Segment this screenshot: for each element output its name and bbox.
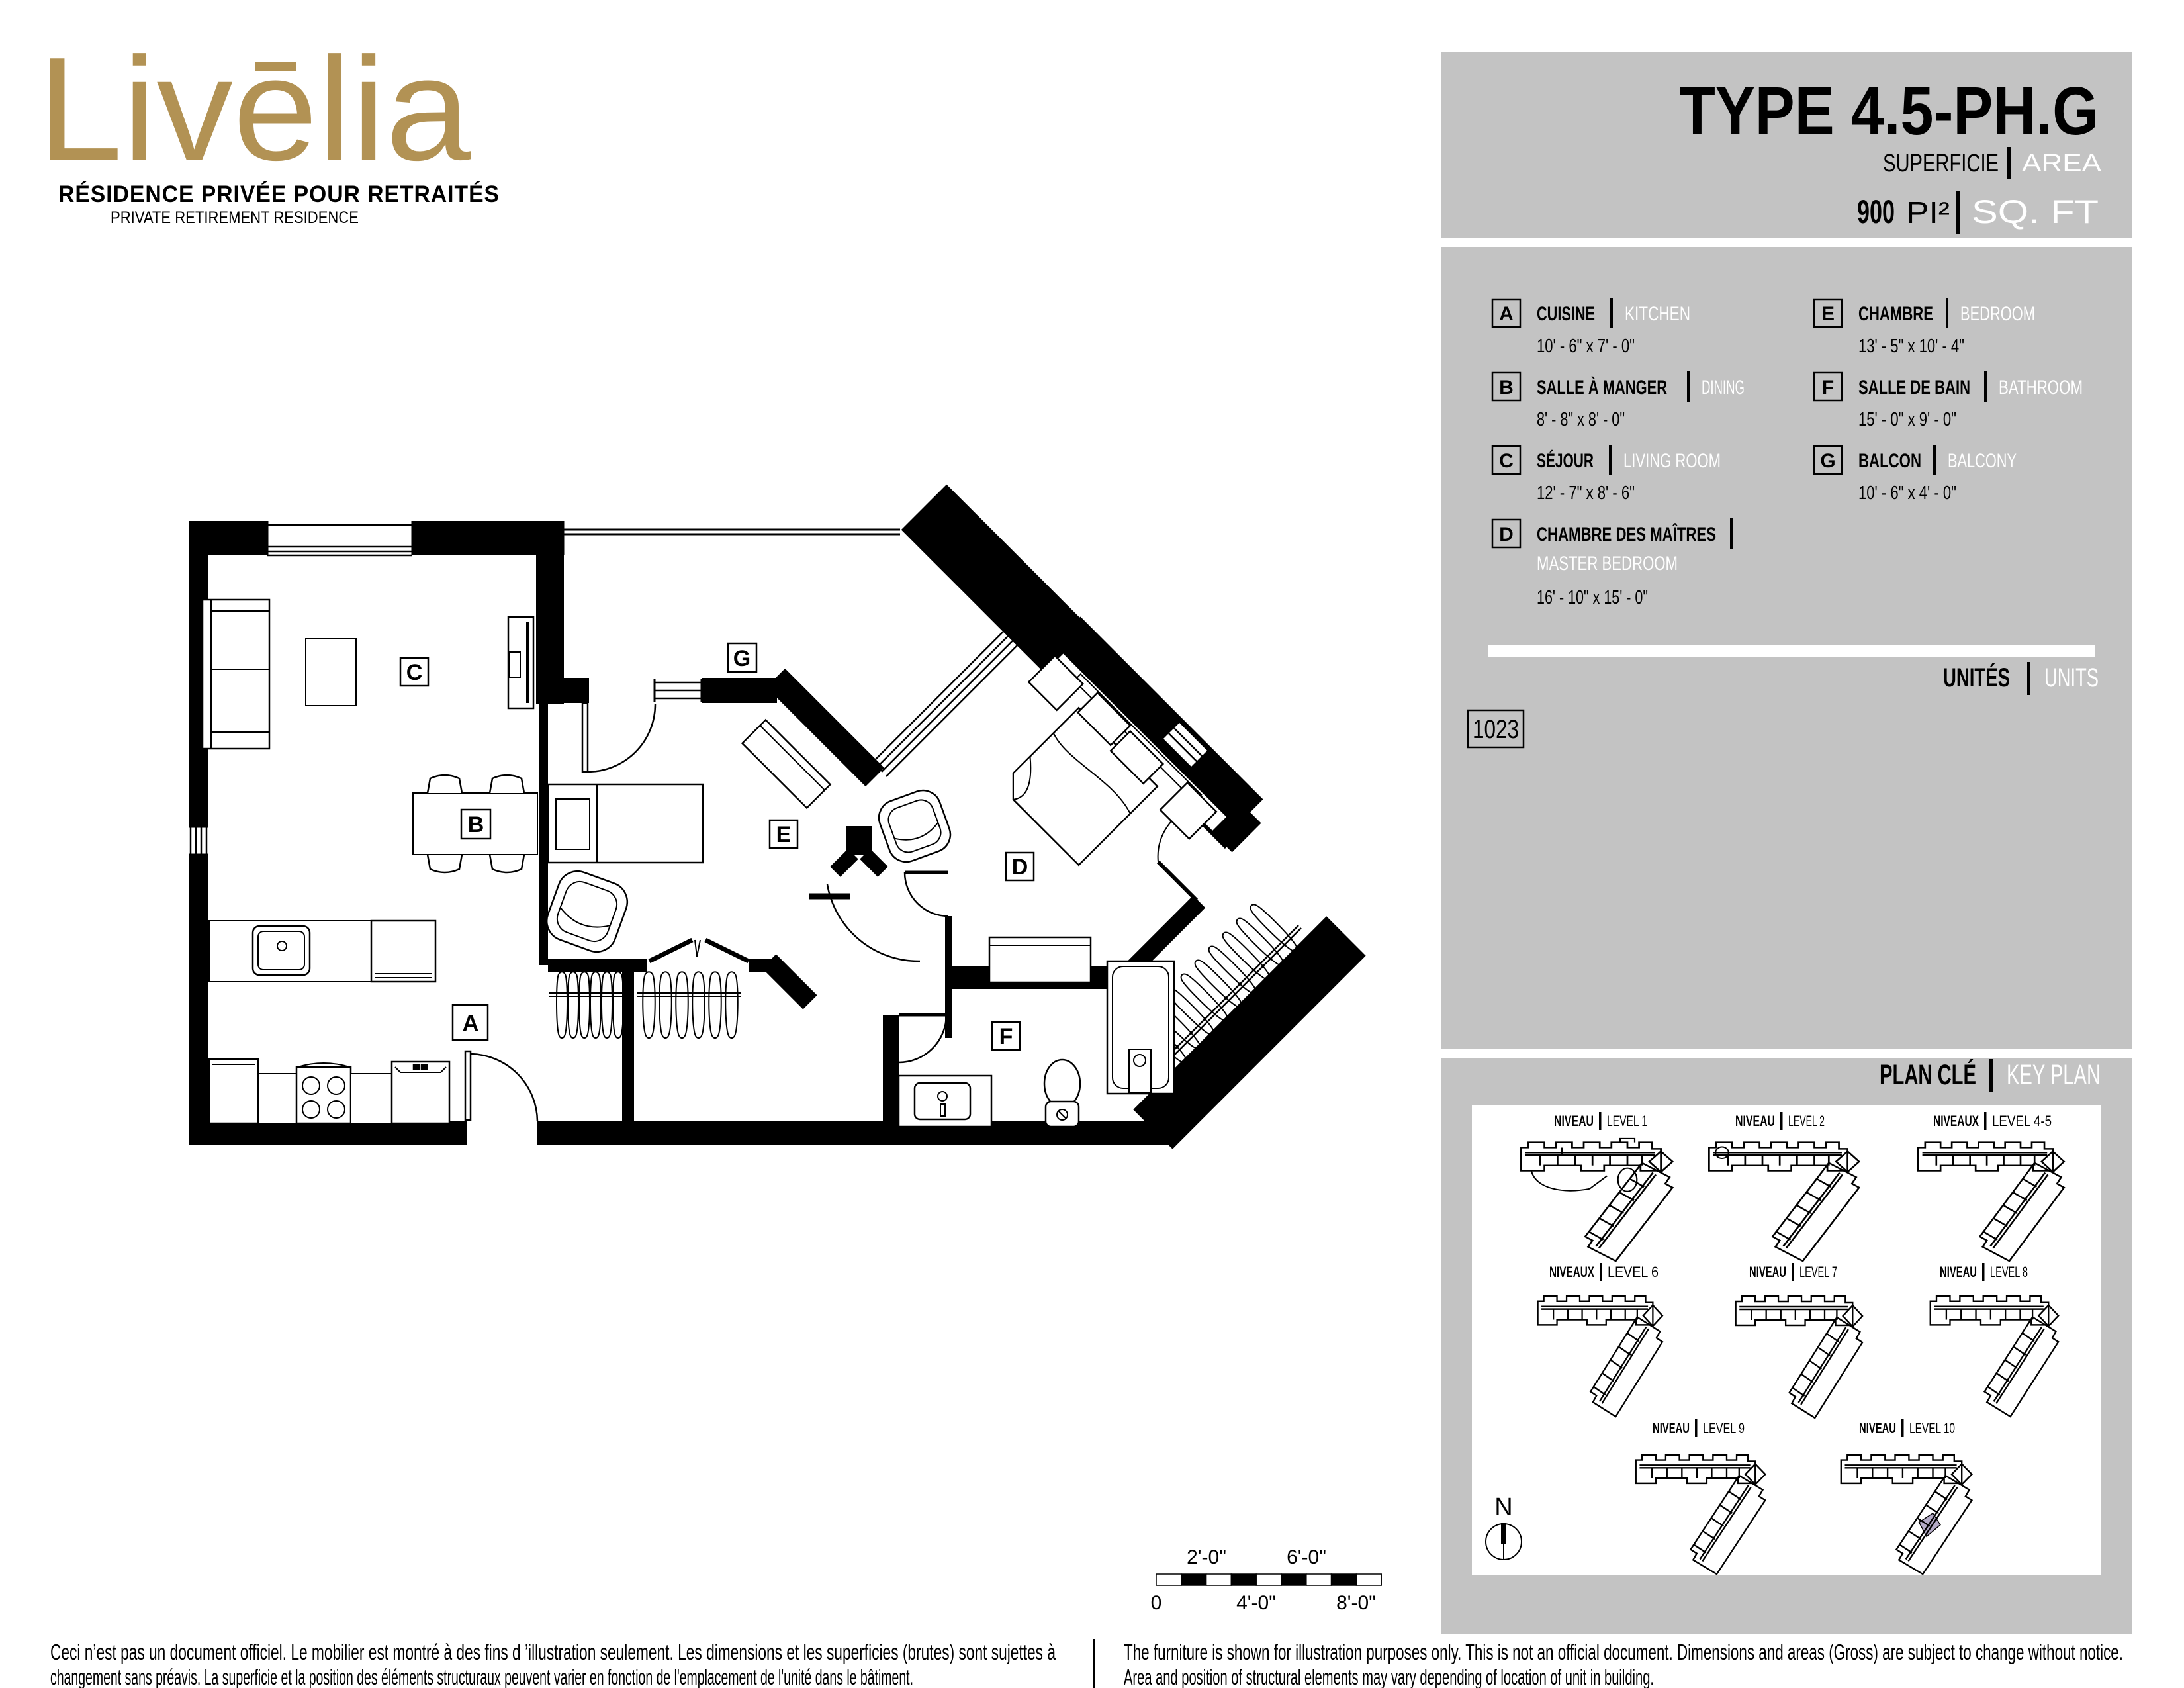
svg-text:SALLE À MANGER: SALLE À MANGER (1537, 376, 1667, 399)
svg-text:changement sans préavis. La su: changement sans préavis. La superficie e… (50, 1665, 913, 1688)
svg-text:KITCHEN: KITCHEN (1625, 303, 1690, 325)
svg-text:RÉSIDENCE PRIVÉE POUR RETRAITÉ: RÉSIDENCE PRIVÉE POUR RETRAITÉS (58, 181, 500, 207)
svg-text:SQ. FT: SQ. FT (1972, 193, 2099, 230)
svg-text:KEY PLAN: KEY PLAN (2007, 1059, 2101, 1091)
svg-text:UNITÉS: UNITÉS (1943, 663, 2010, 692)
svg-text:Livēlia: Livēlia (38, 27, 471, 191)
svg-text:LEVEL 4-5: LEVEL 4-5 (1992, 1113, 2052, 1129)
svg-text:2'-0": 2'-0" (1187, 1546, 1226, 1568)
svg-text:C: C (1499, 450, 1514, 472)
svg-text:LEVEL 6: LEVEL 6 (1608, 1264, 1659, 1280)
svg-text:D: D (1499, 524, 1514, 545)
svg-text:NIVEAU: NIVEAU (1653, 1420, 1690, 1436)
svg-text:BATHROOM: BATHROOM (1999, 377, 2083, 399)
svg-text:8' - 8" x 8' - 0": 8' - 8" x 8' - 0" (1537, 409, 1625, 430)
svg-text:10' - 6" x 4' - 0": 10' - 6" x 4' - 0" (1858, 483, 1956, 504)
svg-text:The furniture is shown for ill: The furniture is shown for illustration … (1124, 1640, 2123, 1664)
svg-text:Area and position of structura: Area and position of structural elements… (1124, 1665, 1654, 1688)
svg-text:PLAN CLÉ: PLAN CLÉ (1880, 1059, 1976, 1091)
svg-text:E: E (1821, 303, 1835, 325)
svg-text:SALLE DE BAIN: SALLE DE BAIN (1858, 377, 1970, 399)
svg-text:0: 0 (1151, 1592, 1162, 1614)
svg-text:E: E (776, 822, 792, 847)
svg-text:900: 900 (1857, 193, 1895, 230)
svg-text:CHAMBRE DES MAÎTRES: CHAMBRE DES MAÎTRES (1537, 523, 1716, 545)
svg-text:NIVEAU: NIVEAU (1554, 1113, 1594, 1129)
svg-text:BEDROOM: BEDROOM (1960, 303, 2035, 325)
svg-text:NIVEAU: NIVEAU (1859, 1420, 1896, 1436)
svg-text:CHAMBRE: CHAMBRE (1858, 303, 1933, 325)
svg-text:NIVEAU: NIVEAU (1749, 1264, 1786, 1280)
svg-text:12' - 7" x 8' - 6": 12' - 7" x 8' - 6" (1537, 483, 1635, 504)
svg-text:Ceci n’est pas un document off: Ceci n’est pas un document officiel. Le … (50, 1640, 1056, 1664)
svg-text:SUPERFICIE: SUPERFICIE (1883, 150, 1999, 177)
svg-text:MASTER BEDROOM: MASTER BEDROOM (1537, 553, 1678, 575)
svg-text:SÉJOUR: SÉJOUR (1537, 449, 1594, 472)
svg-text:CUISINE: CUISINE (1537, 303, 1595, 325)
svg-text:B: B (468, 812, 484, 837)
svg-text:AREA: AREA (2022, 150, 2102, 177)
svg-text:15' - 0" x 9' - 0": 15' - 0" x 9' - 0" (1858, 409, 1956, 430)
svg-text:BALCONY: BALCONY (1948, 450, 2017, 472)
svg-text:16' - 10" x 15' - 0": 16' - 10" x 15' - 0" (1537, 587, 1648, 608)
svg-text:NIVEAUX: NIVEAUX (1933, 1113, 1979, 1129)
svg-text:13' - 5" x 10' - 4": 13' - 5" x 10' - 4" (1858, 336, 1964, 357)
svg-text:UNITS: UNITS (2044, 663, 2099, 692)
svg-text:NIVEAU: NIVEAU (1735, 1113, 1775, 1129)
svg-text:A: A (463, 1011, 479, 1036)
svg-text:PI²: PI² (1906, 195, 1950, 230)
svg-text:1023: 1023 (1473, 715, 1519, 744)
svg-text:DINING: DINING (1702, 377, 1745, 399)
svg-text:LEVEL 9: LEVEL 9 (1703, 1420, 1745, 1436)
svg-text:LEVEL 10: LEVEL 10 (1909, 1420, 1955, 1436)
svg-text:D: D (1012, 855, 1028, 880)
svg-text:LIVING ROOM: LIVING ROOM (1623, 450, 1721, 472)
svg-text:F: F (1822, 377, 1834, 399)
svg-text:8'-0": 8'-0" (1336, 1592, 1376, 1614)
svg-text:G: G (1820, 450, 1835, 472)
svg-text:6'-0": 6'-0" (1287, 1546, 1326, 1568)
svg-text:LEVEL 8: LEVEL 8 (1990, 1264, 2028, 1280)
svg-text:10' - 6" x 7' - 0": 10' - 6" x 7' - 0" (1537, 336, 1635, 357)
svg-text:F: F (999, 1024, 1013, 1049)
svg-text:NIVEAU: NIVEAU (1940, 1264, 1977, 1280)
svg-text:LEVEL 2: LEVEL 2 (1788, 1113, 1825, 1129)
svg-text:A: A (1499, 303, 1514, 325)
svg-text:BALCON: BALCON (1858, 450, 1921, 472)
svg-text:LEVEL 1: LEVEL 1 (1607, 1113, 1647, 1129)
svg-text:B: B (1499, 377, 1514, 399)
svg-text:C: C (406, 660, 423, 685)
svg-text:4'-0": 4'-0" (1236, 1592, 1276, 1614)
svg-text:NIVEAUX: NIVEAUX (1549, 1264, 1594, 1280)
svg-text:G: G (733, 646, 751, 671)
svg-text:PRIVATE RETIREMENT RESIDENCE: PRIVATE RETIREMENT RESIDENCE (111, 209, 359, 227)
svg-text:LEVEL 7: LEVEL 7 (1799, 1264, 1837, 1280)
svg-text:N: N (1494, 1493, 1512, 1521)
svg-text:TYPE 4.5-PH.G: TYPE 4.5-PH.G (1679, 73, 2099, 149)
